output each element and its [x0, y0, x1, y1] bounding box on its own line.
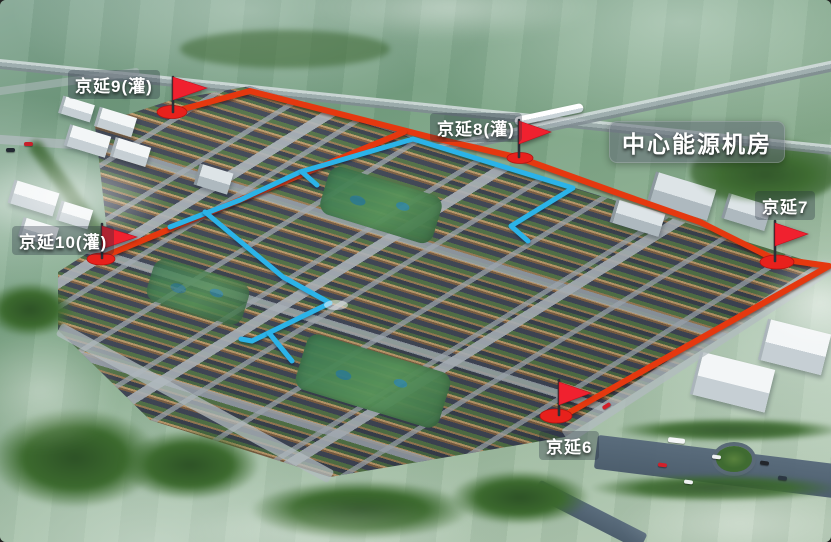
junction-node: [324, 300, 348, 310]
marker-label-jingyan-6: 京延6: [539, 431, 599, 460]
blue-route-branch-central: [205, 212, 330, 341]
blue-route-branch-south: [269, 333, 292, 361]
flag-icon-jingyan-9: [157, 77, 207, 119]
aerial-site-overview: 京延9(灌) 京延8(灌) 中心能源机房 京延7 京延10(灌) 京延6: [0, 0, 831, 542]
marker-label-jingyan-8: 京延8(灌): [430, 113, 522, 142]
marker-label-central-energy-plant: 中心能源机房: [609, 121, 785, 163]
marker-label-jingyan-10: 京延10(灌): [12, 226, 114, 255]
heating-route-blue: [170, 139, 573, 361]
marker-label-jingyan-7: 京延7: [755, 191, 815, 220]
marker-label-jingyan-9: 京延9(灌): [68, 70, 160, 99]
